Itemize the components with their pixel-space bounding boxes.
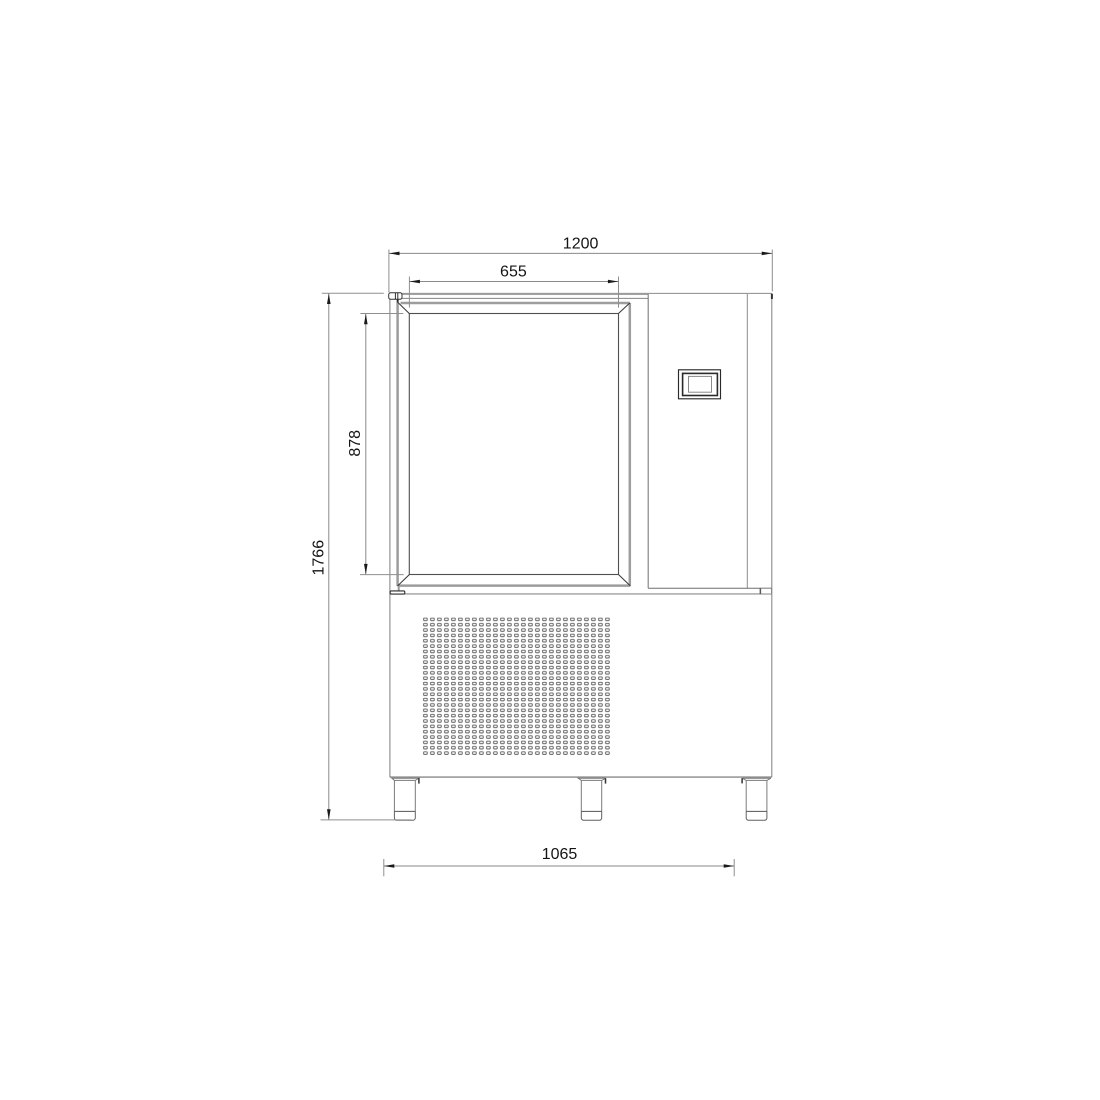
- svg-text:1065: 1065: [542, 846, 578, 863]
- svg-text:655: 655: [500, 264, 527, 281]
- svg-text:1200: 1200: [563, 235, 599, 252]
- svg-text:878: 878: [347, 430, 364, 457]
- svg-text:1766: 1766: [311, 540, 328, 576]
